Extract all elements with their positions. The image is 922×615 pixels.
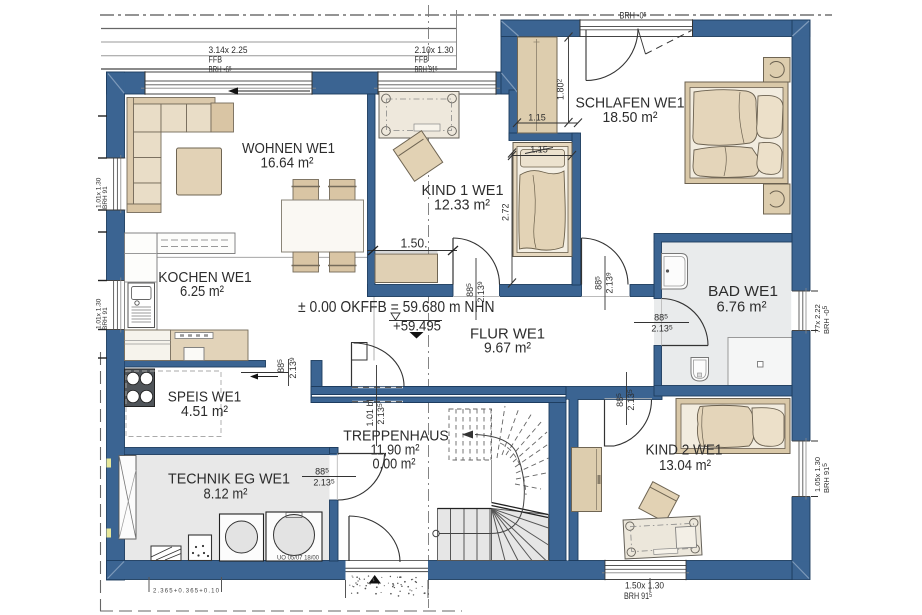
svg-text:FFB: FFB	[415, 55, 429, 65]
svg-text:1.05x 1.30: 1.05x 1.30	[813, 457, 822, 492]
svg-text:4.51 m²: 4.51 m²	[181, 403, 228, 420]
svg-text:BRH -65: BRH -65	[209, 65, 232, 75]
svg-text:3.14x 2.25: 3.14x 2.25	[209, 45, 248, 55]
svg-text:9.67 m²: 9.67 m²	[484, 340, 531, 357]
svg-text:+59.495: +59.495	[393, 318, 441, 334]
svg-text:13.04 m²: 13.04 m²	[659, 457, 711, 474]
svg-text:77x 2.22: 77x 2.22	[813, 304, 822, 333]
svg-text:BRH -05: BRH -05	[822, 305, 831, 334]
svg-text:6.25 m²: 6.25 m²	[180, 283, 224, 300]
svg-text:1.50x 1.30: 1.50x 1.30	[625, 581, 664, 591]
svg-text:BRH 91: BRH 91	[102, 186, 109, 209]
svg-text:UO 05/07 18/00: UO 05/07 18/00	[277, 556, 320, 562]
svg-text:BRH 91: BRH 91	[102, 307, 109, 330]
svg-text:FFB: FFB	[209, 55, 223, 65]
svg-text:16.64 m²: 16.64 m²	[261, 155, 314, 172]
svg-text:6.76 m²: 6.76 m²	[717, 299, 767, 316]
svg-text:BAD WE1: BAD WE1	[708, 283, 778, 300]
svg-text:BRH -05: BRH -05	[620, 11, 647, 21]
svg-text:BRH 915: BRH 915	[822, 463, 831, 493]
svg-text:BRH 915: BRH 915	[624, 591, 652, 601]
svg-text:2.365+0.365+0.10: 2.365+0.365+0.10	[153, 589, 220, 595]
svg-text:18.50 m²: 18.50 m²	[603, 109, 658, 126]
svg-text:KIND 2 WE1: KIND 2 WE1	[646, 442, 723, 459]
svg-text:1.15: 1.15	[528, 113, 546, 123]
svg-text:1.50.: 1.50.	[401, 237, 428, 251]
svg-text:12.33 m²: 12.33 m²	[434, 197, 490, 214]
svg-text:2.10x 1.30: 2.10x 1.30	[415, 45, 454, 55]
svg-text:BRH 915: BRH 915	[415, 65, 438, 75]
svg-text:1.01 bl: 1.01 bl	[365, 399, 375, 426]
svg-text:0,00 m²: 0,00 m²	[373, 456, 416, 473]
svg-text:8.12 m²: 8.12 m²	[204, 486, 248, 503]
svg-text:2.72: 2.72	[501, 203, 511, 221]
